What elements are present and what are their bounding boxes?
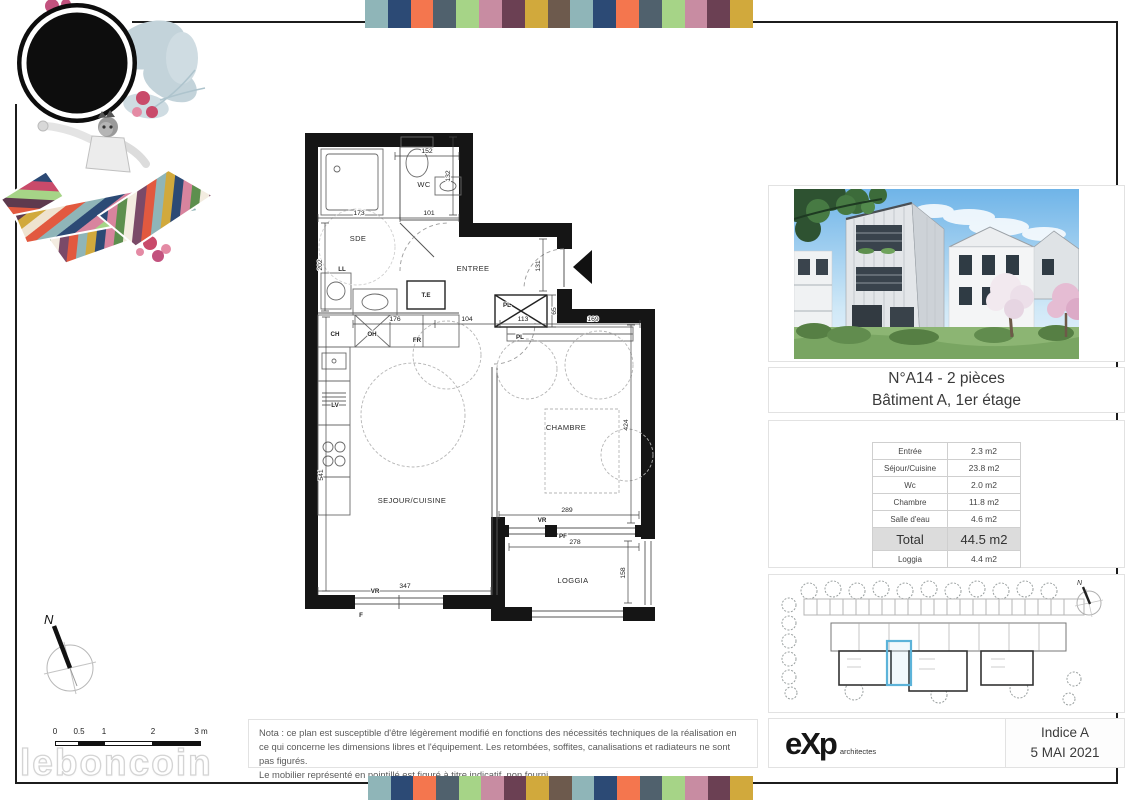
dimension-label: 65	[551, 307, 558, 315]
leboncoin-watermark: leboncoin	[20, 742, 213, 784]
site-plan-box: N	[768, 574, 1125, 713]
north-label: N	[44, 612, 54, 627]
room-label: Chambre	[873, 494, 948, 511]
room-area: 2.0 m2	[948, 477, 1021, 494]
dimension-label: 152	[421, 148, 433, 155]
banner-stripe	[616, 0, 639, 28]
room-name-label: WC	[417, 180, 430, 189]
fixture-label: VR	[371, 588, 380, 595]
site-parking	[804, 599, 1084, 615]
banner-stripe	[433, 0, 456, 28]
fixture-label: VR	[538, 517, 547, 524]
room-name-label: LOGGIA	[557, 576, 588, 585]
plan-furniture	[319, 209, 653, 493]
scale-label: 1	[102, 727, 106, 736]
banner-stripe	[504, 776, 527, 800]
banner-stripe	[594, 776, 617, 800]
plan-sheet: WCSDEENTREECHAMBRESEJOUR/CUISINELOGGIA15…	[0, 0, 1131, 800]
floor-plan: WCSDEENTREECHAMBRESEJOUR/CUISINELOGGIA15…	[295, 125, 670, 625]
dimension-label: 158	[620, 567, 627, 579]
fixture-label: PL	[503, 302, 511, 309]
dimension-label: 173	[353, 210, 365, 217]
color-banner-bottom	[368, 776, 753, 800]
dimension-label: 541	[318, 469, 325, 481]
dimension-label: 202	[317, 259, 324, 271]
banner-stripe	[662, 0, 685, 28]
area-table-row: Loggia4.4 m2	[873, 551, 1021, 568]
dimension-label: 424	[623, 419, 630, 431]
banner-stripe	[525, 0, 548, 28]
room-label: Séjour/Cuisine	[873, 460, 948, 477]
banner-stripe	[459, 776, 482, 800]
site-plan: N	[769, 575, 1124, 712]
banner-stripe	[481, 776, 504, 800]
banner-stripe	[639, 0, 662, 28]
room-label: Wc	[873, 477, 948, 494]
fixture-label: T.E	[422, 292, 431, 299]
room-label: Salle d'eau	[873, 511, 948, 528]
banner-stripe	[502, 0, 525, 28]
area-table-row: Séjour/Cuisine23.8 m2	[873, 460, 1021, 477]
site-building-footprint	[831, 623, 1066, 691]
fixture-label: PF	[559, 533, 567, 540]
dimension-label: 113	[518, 316, 529, 323]
architect-logo: eXp architectes	[769, 719, 1006, 767]
unit-title: N°A14 - 2 pièces	[888, 368, 1004, 390]
title-block: eXp architectes Indice A 5 MAI 2021	[768, 718, 1125, 768]
area-table-row: Salle d'eau4.6 m2	[873, 511, 1021, 528]
area-table-row: Chambre11.8 m2	[873, 494, 1021, 511]
scale-label: 2	[151, 727, 155, 736]
banner-stripe	[730, 0, 753, 28]
fixture-label: PL	[516, 334, 524, 341]
banner-stripe	[368, 776, 391, 800]
color-banner-top	[365, 0, 753, 28]
banner-stripe	[593, 0, 616, 28]
logo-disc-icon	[17, 3, 137, 123]
scale-labels: 00.5123 m	[55, 727, 215, 737]
building-photo-box	[768, 185, 1125, 362]
plan-walls	[305, 133, 655, 621]
dimension-label: 132	[445, 170, 452, 182]
revision-block: Indice A 5 MAI 2021	[1006, 719, 1124, 767]
room-area: 4.4 m2	[948, 551, 1021, 568]
room-label: Loggia	[873, 551, 948, 568]
area-table-row: Wc2.0 m2	[873, 477, 1021, 494]
dimension-label: 176	[389, 316, 401, 323]
fixture-label: FR	[413, 337, 422, 344]
fixture-label: CH	[331, 331, 340, 338]
banner-stripe	[708, 776, 731, 800]
banner-stripe	[365, 0, 388, 28]
room-area: 44.5 m2	[948, 528, 1021, 551]
dimension-label: 131	[535, 260, 542, 272]
banner-stripe	[572, 776, 595, 800]
dimension-label: 289	[561, 507, 573, 514]
entrance-arrow-icon	[573, 250, 592, 284]
room-area: 4.6 m2	[948, 511, 1021, 528]
plan-fixtures	[318, 137, 633, 515]
room-area: 2.3 m2	[948, 443, 1021, 460]
banner-stripe	[662, 776, 685, 800]
leboncoin-collage-logo	[0, 0, 235, 268]
banner-stripe	[685, 776, 708, 800]
banner-stripe	[456, 0, 479, 28]
area-table-row: Entrée2.3 m2	[873, 443, 1021, 460]
banner-stripe	[411, 0, 434, 28]
banner-stripe	[391, 776, 414, 800]
banner-stripe	[707, 0, 730, 28]
banner-stripe	[730, 776, 753, 800]
banner-stripe	[685, 0, 708, 28]
room-name-label: SEJOUR/CUISINE	[378, 496, 447, 505]
scale-label: 3 m	[194, 727, 207, 736]
room-area: 11.8 m2	[948, 494, 1021, 511]
unit-title-box: N°A14 - 2 pièces Bâtiment A, 1er étage	[768, 367, 1125, 413]
room-name-label: SDE	[350, 234, 367, 243]
fixture-label: LV	[331, 402, 339, 409]
area-table-box: Entrée2.3 m2Séjour/Cuisine23.8 m2Wc2.0 m…	[768, 420, 1125, 568]
banner-stripe	[570, 0, 593, 28]
site-north-label: N	[1077, 580, 1083, 587]
room-name-label: CHAMBRE	[546, 423, 586, 432]
banner-stripe	[479, 0, 502, 28]
revision-date: 5 MAI 2021	[1030, 743, 1099, 763]
fixture-label: OH	[367, 331, 377, 338]
banner-stripe	[413, 776, 436, 800]
area-table-total-row: Total44.5 m2	[873, 528, 1021, 551]
compass-icon: N	[30, 606, 110, 696]
dimension-lines	[318, 137, 640, 603]
banner-stripe	[617, 776, 640, 800]
architect-firm-name: eXp	[785, 728, 836, 759]
banner-stripe	[388, 0, 411, 28]
fixture-label: F	[359, 612, 363, 619]
fixture-label: LL	[338, 266, 346, 273]
room-area: 23.8 m2	[948, 460, 1021, 477]
dimension-label: 169	[587, 316, 599, 323]
dimension-label: 347	[399, 583, 411, 590]
north-needle	[54, 626, 70, 668]
highlighted-unit	[887, 641, 911, 685]
dimension-label: 104	[461, 316, 473, 323]
banner-stripe	[436, 776, 459, 800]
room-label: Entrée	[873, 443, 948, 460]
banner-stripe	[640, 776, 663, 800]
note-text: Nota : ce plan est susceptible d'être lé…	[259, 727, 737, 766]
banner-stripe	[549, 776, 572, 800]
scale-label: 0.5	[73, 727, 84, 736]
architect-firm-suffix: architectes	[840, 747, 876, 756]
scale-label: 0	[53, 727, 57, 736]
room-name-label: ENTREE	[457, 264, 490, 273]
room-label: Total	[873, 528, 948, 551]
dimension-label: 278	[569, 539, 581, 546]
banner-stripe	[526, 776, 549, 800]
area-table: Entrée2.3 m2Séjour/Cuisine23.8 m2Wc2.0 m…	[872, 442, 1021, 568]
note-box: Nota : ce plan est susceptible d'être lé…	[248, 719, 758, 768]
dimension-label: 101	[423, 210, 435, 217]
unit-subtitle: Bâtiment A, 1er étage	[872, 390, 1021, 412]
building-rendering-image	[794, 189, 1079, 359]
revision-index: Indice A	[1041, 723, 1089, 743]
banner-stripe	[548, 0, 571, 28]
